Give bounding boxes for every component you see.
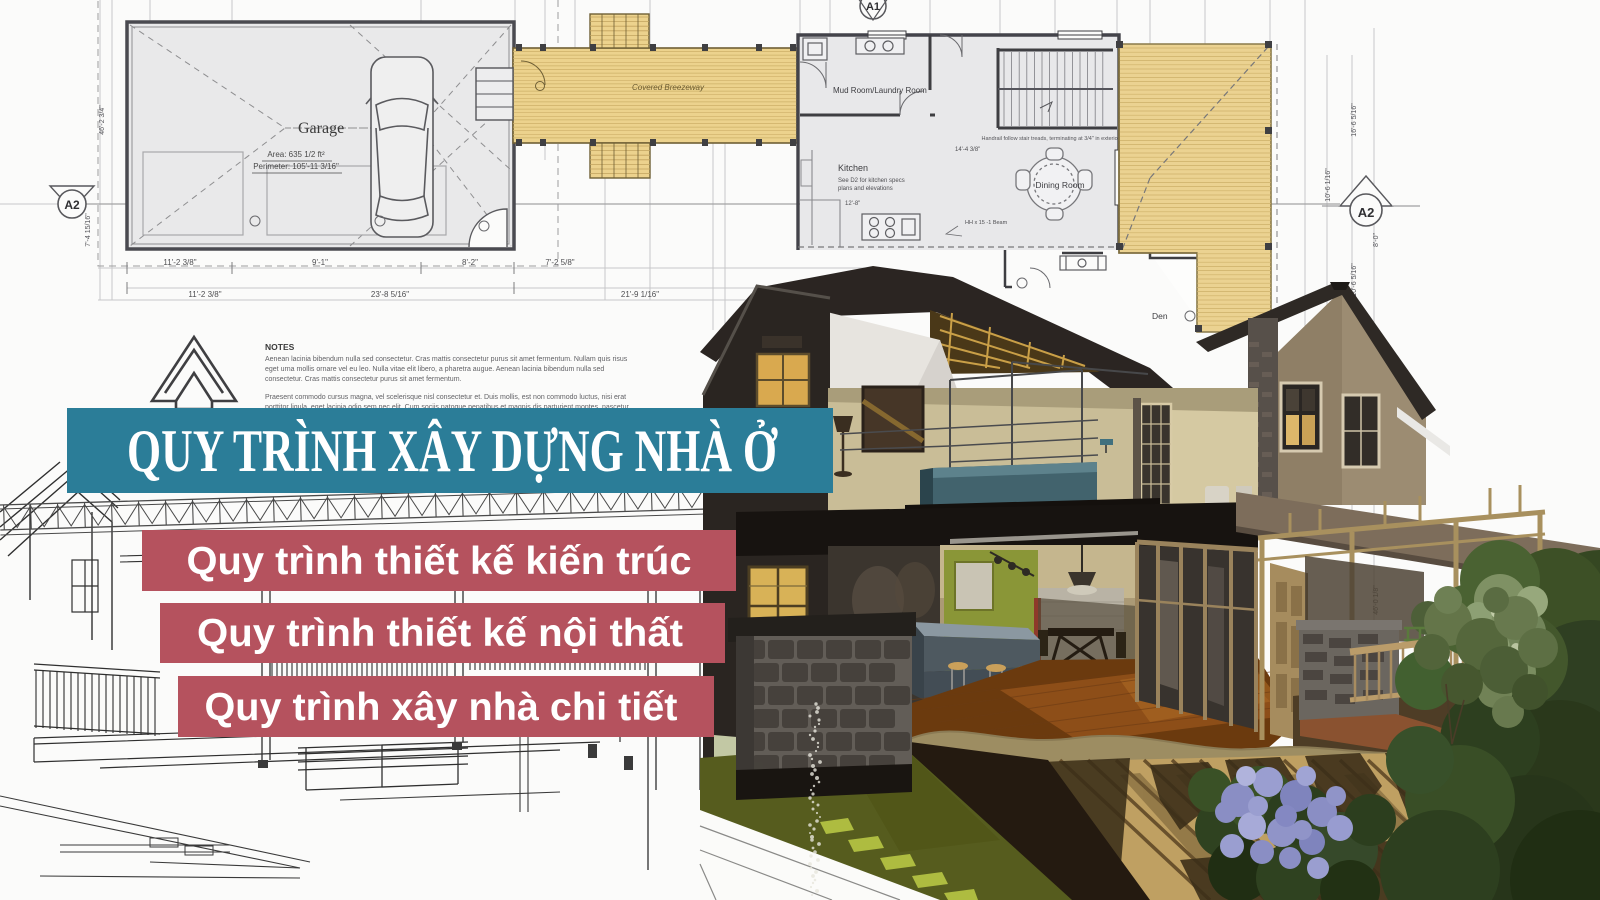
svg-text:Praesent commodo cursus magna,: Praesent commodo cursus magna, vel scele… (265, 394, 626, 401)
svg-text:Aenean lacinia bibendum nulla: Aenean lacinia bibendum nulla sed consec… (265, 356, 628, 363)
svg-text:23'-8 5/16": 23'-8 5/16" (371, 290, 409, 299)
svg-text:QUY TRÌNH XÂY DỰNG NHÀ Ở: QUY TRÌNH XÂY DỰNG NHÀ Ở (127, 418, 778, 484)
svg-text:NOTES: NOTES (265, 342, 295, 352)
svg-text:Mud Room/Laundry Room: Mud Room/Laundry Room (833, 86, 927, 95)
svg-text:Quy trình xây nhà chi tiết: Quy trình xây nhà chi tiết (205, 686, 678, 729)
svg-text:consectetur. Cras mattis conse: consectetur. Cras mattis consectetur pur… (265, 376, 462, 383)
svg-text:11'-2 3/8": 11'-2 3/8" (163, 258, 196, 267)
svg-text:8'-0": 8'-0" (1373, 233, 1380, 247)
svg-text:46'-2 3/4": 46'-2 3/4" (99, 105, 106, 135)
svg-text:See D2 for kitchen specs: See D2 for kitchen specs (838, 178, 905, 184)
svg-text:Covered Breezeway: Covered Breezeway (632, 83, 705, 92)
svg-text:7'-2 5/8": 7'-2 5/8" (545, 258, 574, 267)
svg-text:14'-4 3/8": 14'-4 3/8" (955, 147, 980, 153)
svg-text:16'-6 5/16": 16'-6 5/16" (1351, 103, 1358, 137)
svg-text:A2: A2 (64, 198, 80, 212)
svg-text:8'-2": 8'-2" (462, 258, 478, 267)
svg-text:10'-6 1/16": 10'-6 1/16" (1325, 168, 1332, 202)
svg-text:Handrail follow stair treads,: Handrail follow stair treads, terminatin… (982, 136, 1131, 142)
svg-text:11'-2 3/8": 11'-2 3/8" (188, 290, 221, 299)
svg-text:A2: A2 (1358, 205, 1375, 220)
svg-text:Perimeter: 105'-11 3/16": Perimeter: 105'-11 3/16" (253, 162, 339, 171)
svg-text:Dining Room: Dining Room (1035, 180, 1084, 190)
svg-text:9'-1": 9'-1" (312, 258, 328, 267)
svg-text:12'-8": 12'-8" (845, 201, 860, 207)
svg-text:HH x 15 -1 Beam: HH x 15 -1 Beam (965, 220, 1008, 226)
svg-text:Quy trình thiết kế kiến trúc: Quy trình thiết kế kiến trúc (187, 540, 692, 583)
svg-text:plans and elevations: plans and elevations (838, 186, 893, 192)
svg-text:21'-9 1/16": 21'-9 1/16" (621, 290, 659, 299)
svg-text:Den: Den (1152, 311, 1168, 321)
svg-text:A1: A1 (866, 1, 880, 13)
svg-text:7'-4 15/16": 7'-4 15/16" (85, 213, 92, 247)
svg-text:Quy trình thiết kế nội thất: Quy trình thiết kế nội thất (197, 612, 683, 655)
svg-text:eget urna mollis ornare vel eu: eget urna mollis ornare vel eu leo. Null… (265, 366, 604, 373)
svg-text:Garage: Garage (298, 120, 344, 137)
svg-text:Area: 635 1/2 ft²: Area: 635 1/2 ft² (267, 150, 325, 159)
svg-text:Kitchen: Kitchen (838, 163, 868, 173)
